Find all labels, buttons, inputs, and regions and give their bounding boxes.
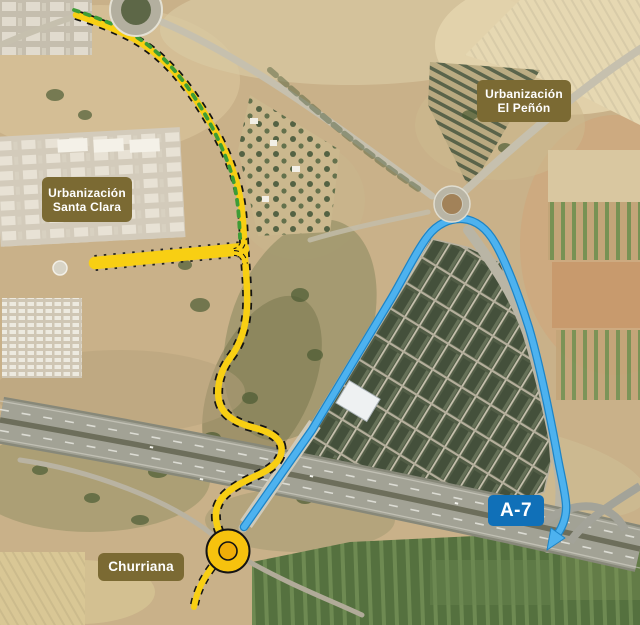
field-brown [552,262,640,328]
field-vineyard-2 [556,330,640,400]
housing-estate [2,298,82,378]
label-churriana: Churriana [98,553,184,581]
churriana-roundabout-island [219,542,237,560]
field-vineyard [548,202,640,260]
label-line: Urbanización [48,186,126,200]
field-strip [548,150,640,202]
label-a7: A-7 [488,495,544,526]
label-line: Churriana [108,560,174,574]
label-urbanizacion-el-penon: Urbanización El Peñón [477,80,571,122]
label-line: Urbanización [485,87,563,101]
el-penon-roundabout-island [442,194,463,215]
label-line: El Peñón [498,101,551,115]
label-line: A-7 [500,504,532,518]
map-canvas: Urbanización Santa Clara Urbanización El… [0,0,640,625]
label-urbanizacion-santa-clara: Urbanización Santa Clara [42,177,132,222]
small-roundabout [53,261,67,275]
label-line: Santa Clara [53,200,121,214]
